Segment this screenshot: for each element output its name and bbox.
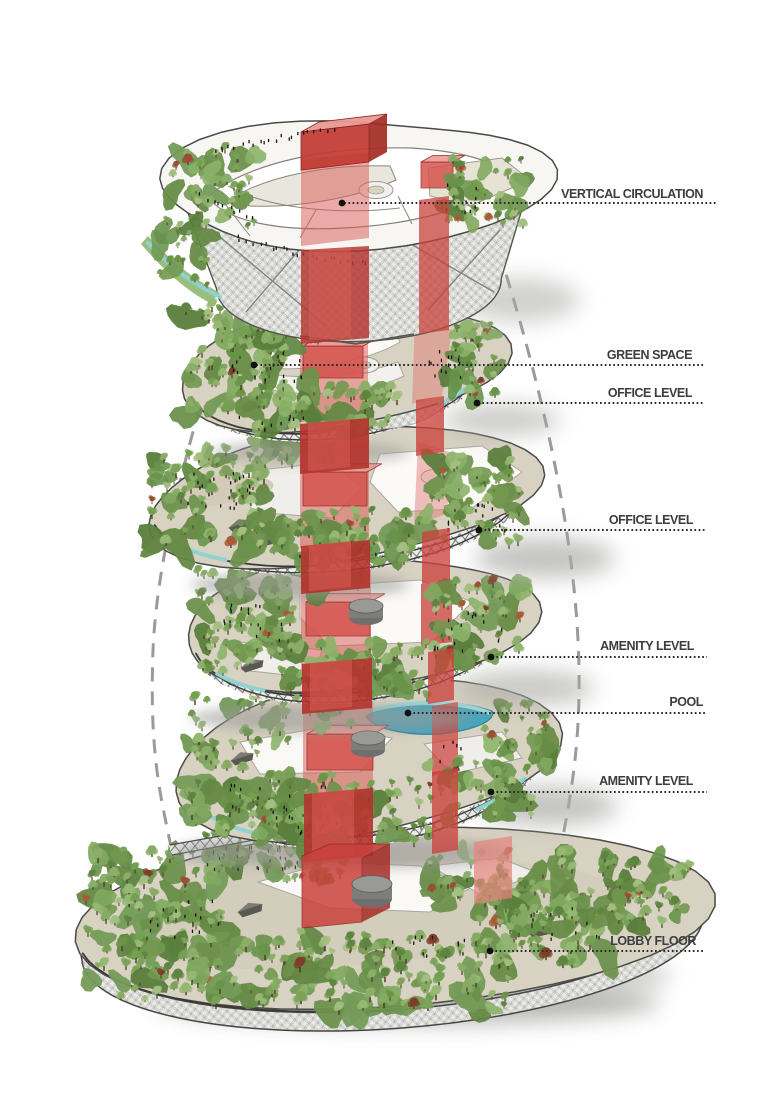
svg-text:AMENITY LEVEL: AMENITY LEVEL — [600, 639, 695, 653]
svg-text:VERTICAL CIRCULATION: VERTICAL CIRCULATION — [561, 187, 703, 201]
svg-text:AMENITY LEVEL: AMENITY LEVEL — [599, 774, 694, 788]
svg-text:OFFICE LEVEL: OFFICE LEVEL — [609, 513, 694, 527]
svg-text:LOBBY FLOOR: LOBBY FLOOR — [610, 934, 696, 948]
svg-text:OFFICE LEVEL: OFFICE LEVEL — [608, 386, 693, 400]
svg-text:POOL: POOL — [669, 695, 703, 709]
svg-text:GREEN SPACE: GREEN SPACE — [607, 348, 692, 362]
